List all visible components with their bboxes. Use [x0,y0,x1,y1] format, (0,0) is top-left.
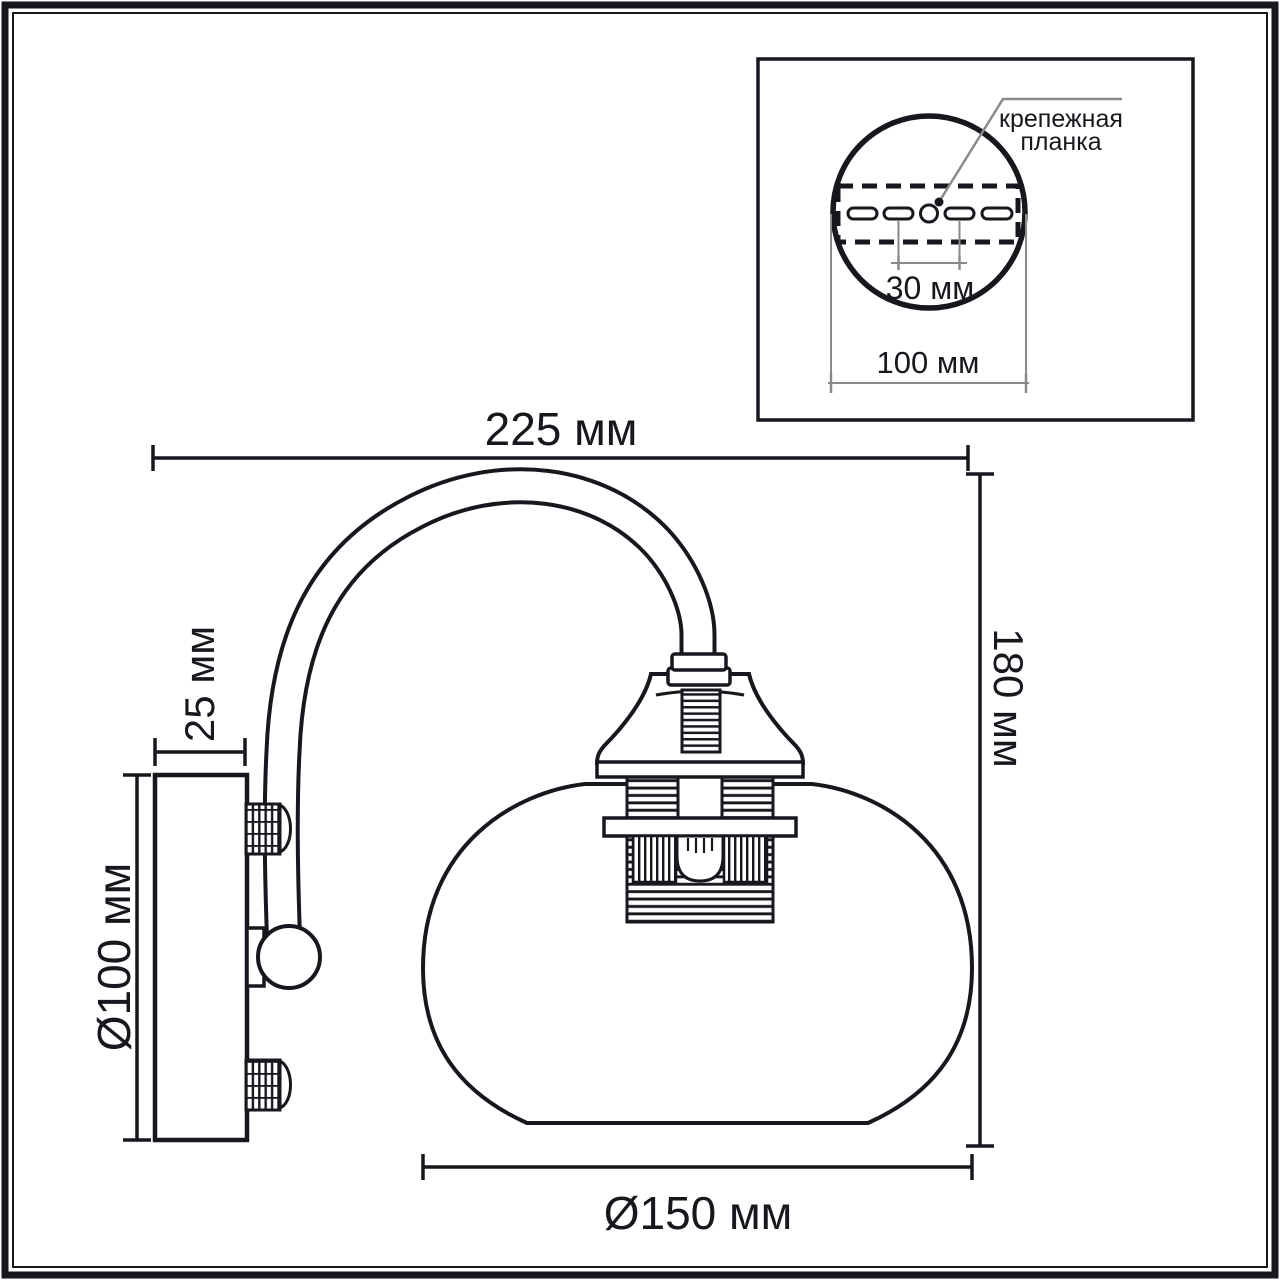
mounting-detail-inset: крепежная планка 30 мм 100 мм [758,59,1193,420]
threaded-nipple [682,690,720,752]
dimension-inset-plate-width-label: 100 мм [877,345,980,380]
technical-drawing-page: 225 мм 180 мм 25 мм Ø100 мм Ø150 мм [0,0,1280,1280]
sconce-dimension-drawing: 225 мм 180 мм 25 мм Ø100 мм Ø150 мм [0,0,1280,1280]
leader-dot [935,198,944,207]
socket-ring [604,818,796,836]
dimension-height-label: 180 мм [985,628,1032,768]
center-hole [921,205,938,222]
mounting-knob-bottom [246,1060,291,1110]
dimension-plate-depth-label: 25 мм [176,626,223,742]
bulb-arch [677,836,723,881]
flange [597,762,803,777]
dimension-plate-diameter-label: Ø100 мм [88,863,140,1052]
lamp-socket [604,776,796,922]
dimension-width-label: 225 мм [485,403,638,455]
dimension-shade-diameter-label: Ø150 мм [604,1187,793,1239]
arm-collar [668,654,730,685]
mounting-knob-top [246,804,291,854]
ball-joint [247,926,320,988]
wall-plate [155,775,247,1140]
dimension-slot-spacing-label: 30 мм [886,270,974,306]
callout-label-line2: планка [1020,128,1101,156]
mounting-slots [848,205,1012,222]
